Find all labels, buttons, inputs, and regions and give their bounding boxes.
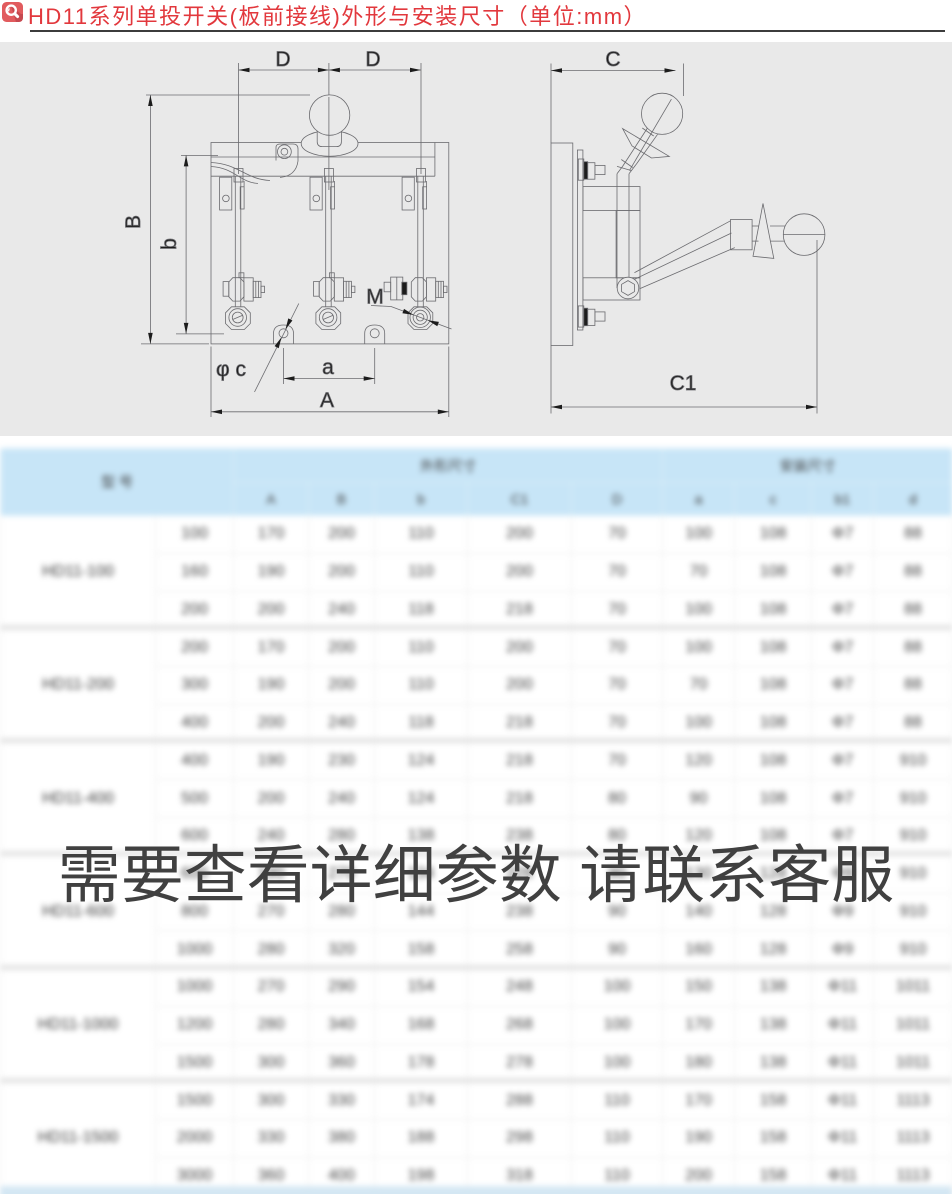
svg-text:a: a [322,356,334,379]
svg-text:M: M [366,286,384,309]
svg-text:b: b [158,238,181,250]
svg-text:D: D [365,48,380,71]
svg-text:φ c: φ c [216,358,246,381]
svg-text:C1: C1 [670,372,697,395]
svg-text:C: C [605,48,620,71]
svg-text:A: A [320,389,334,412]
svg-text:B: B [122,215,145,229]
svg-text:D: D [275,48,290,71]
